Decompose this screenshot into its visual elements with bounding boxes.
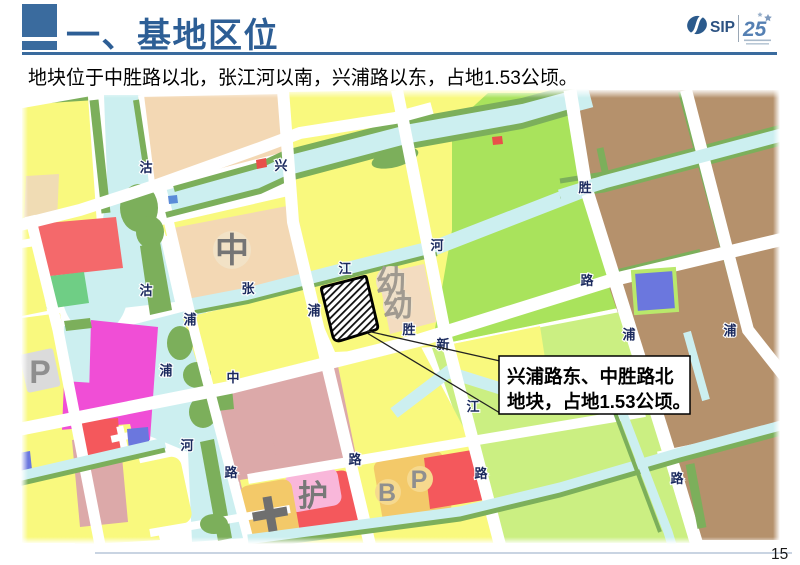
svg-text:B: B <box>378 479 396 507</box>
svg-text:河: 河 <box>180 438 193 453</box>
svg-text:浦: 浦 <box>622 327 635 342</box>
svg-text:中: 中 <box>226 370 239 385</box>
svg-text:P: P <box>411 466 428 494</box>
svg-text:P: P <box>29 354 50 390</box>
svg-text:胜: 胜 <box>402 322 415 337</box>
svg-text:浦: 浦 <box>159 363 172 378</box>
svg-text:胜: 胜 <box>578 180 591 195</box>
svg-text:兴: 兴 <box>274 158 287 173</box>
svg-text:路: 路 <box>348 452 362 467</box>
svg-text:江: 江 <box>338 261 351 276</box>
svg-text:护: 护 <box>298 480 328 513</box>
svg-text:浦: 浦 <box>307 303 320 318</box>
svg-text:浦: 浦 <box>183 312 196 327</box>
svg-text:幼: 幼 <box>383 290 413 323</box>
svg-text:沽: 沽 <box>139 160 152 175</box>
svg-text:沽: 沽 <box>139 283 152 298</box>
svg-text:张: 张 <box>241 281 255 296</box>
svg-text:路: 路 <box>224 465 238 480</box>
svg-text:路: 路 <box>580 273 594 288</box>
svg-text:江: 江 <box>466 399 479 414</box>
svg-text:河: 河 <box>430 238 443 253</box>
svg-text:中: 中 <box>215 232 249 270</box>
svg-text:浦: 浦 <box>723 323 736 338</box>
svg-text:地块，占地1.53公顷。: 地块，占地1.53公顷。 <box>507 391 691 412</box>
svg-text:兴浦路东、中胜路北: 兴浦路东、中胜路北 <box>507 366 674 387</box>
svg-text:路: 路 <box>474 466 488 481</box>
svg-text:路: 路 <box>670 471 684 486</box>
